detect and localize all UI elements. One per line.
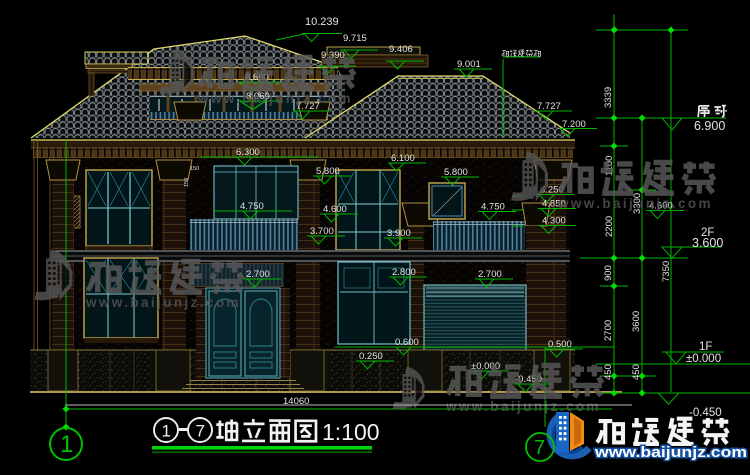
- svg-text:6.300: 6.300: [236, 147, 260, 158]
- svg-text:7: 7: [196, 422, 205, 441]
- svg-text:1F: 1F: [699, 341, 712, 353]
- svg-text:2.800: 2.800: [392, 267, 416, 278]
- svg-text:0.250: 0.250: [359, 351, 383, 362]
- svg-text:6.100: 6.100: [391, 153, 415, 164]
- svg-text:2F: 2F: [701, 227, 714, 239]
- svg-text:3.900: 3.900: [387, 228, 411, 239]
- svg-text:-0.450: -0.450: [689, 407, 722, 419]
- svg-text:3600: 3600: [631, 311, 642, 332]
- svg-text:2.700: 2.700: [478, 269, 502, 280]
- svg-text:2200: 2200: [604, 216, 615, 237]
- svg-text:9.715: 9.715: [343, 33, 367, 44]
- svg-text:900: 900: [603, 265, 614, 281]
- svg-text:2700: 2700: [603, 320, 614, 341]
- svg-text:1:100: 1:100: [322, 419, 380, 445]
- svg-text:4.600: 4.600: [323, 204, 347, 215]
- svg-text:150: 150: [184, 178, 190, 187]
- svg-text:4.750: 4.750: [240, 201, 264, 212]
- svg-text:7350: 7350: [661, 261, 672, 282]
- svg-text:6.900: 6.900: [694, 119, 725, 133]
- svg-text:1: 1: [60, 431, 73, 458]
- svg-text:7: 7: [534, 437, 545, 459]
- svg-text:5.800: 5.800: [444, 167, 468, 178]
- svg-text:3339: 3339: [603, 87, 614, 108]
- svg-text:www.baijunjz.com: www.baijunjz.com: [594, 445, 747, 461]
- svg-text:9.001: 9.001: [457, 59, 481, 70]
- svg-text:0.500: 0.500: [548, 339, 572, 350]
- svg-text:2.700: 2.700: [246, 269, 270, 280]
- svg-text:7.727: 7.727: [537, 101, 561, 112]
- svg-text:5.800: 5.800: [316, 166, 340, 177]
- svg-text:4.750: 4.750: [481, 202, 505, 213]
- svg-text:450: 450: [631, 364, 642, 380]
- svg-text:450: 450: [603, 364, 614, 380]
- svg-text:3.700: 3.700: [310, 226, 334, 237]
- svg-text:4.300: 4.300: [542, 216, 566, 227]
- svg-text:150: 150: [190, 166, 199, 172]
- svg-text:±0.000: ±0.000: [686, 353, 721, 365]
- svg-text:9.406: 9.406: [389, 44, 413, 55]
- svg-text:0.600: 0.600: [395, 337, 419, 348]
- svg-text:7.200: 7.200: [562, 119, 586, 130]
- svg-text:1: 1: [162, 422, 171, 441]
- svg-text:10.239: 10.239: [305, 16, 339, 28]
